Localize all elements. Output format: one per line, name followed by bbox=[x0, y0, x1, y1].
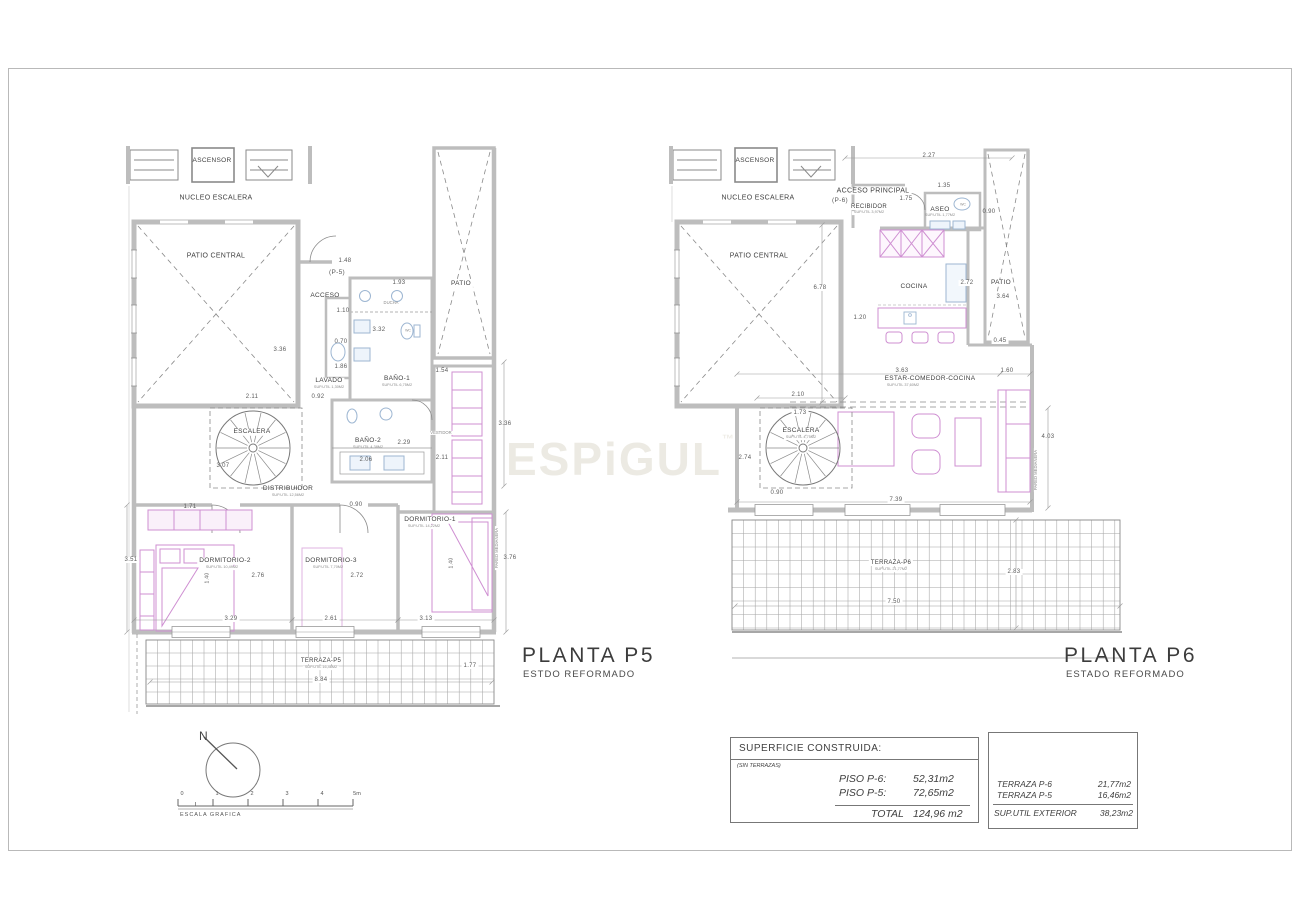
built-row-label: PISO P-5: bbox=[839, 787, 886, 799]
north-label: N bbox=[199, 729, 208, 743]
entry-p6 bbox=[853, 182, 985, 230]
scale-tick-label: 5m bbox=[353, 791, 361, 797]
scale-tick-label: 4 bbox=[320, 791, 323, 797]
wet-rooms-p5 bbox=[310, 236, 432, 482]
scale-tick-label: 1 bbox=[215, 791, 218, 797]
exterior-row-value: 21,77m2 bbox=[1098, 779, 1131, 789]
patio-central-p5 bbox=[131, 222, 298, 406]
exterior-area-table: TERRAZA P-6 21,77m2 TERRAZA P-5 16,46m2 … bbox=[988, 732, 1138, 829]
escalera-p5 bbox=[210, 408, 302, 488]
built-total-label: TOTAL bbox=[871, 808, 904, 820]
terraza-p5 bbox=[137, 634, 500, 714]
scale-tick-label: 0 bbox=[180, 791, 183, 797]
bedrooms-p5 bbox=[134, 505, 492, 638]
exterior-total-value: 38,23m2 bbox=[1100, 808, 1133, 818]
stair-core-p6 bbox=[671, 146, 853, 222]
exterior-row-label: TERRAZA P-5 bbox=[997, 790, 1052, 800]
dimension-lines bbox=[125, 156, 1123, 685]
vestidor-p5 bbox=[434, 366, 494, 512]
built-row-value: 52,31m2 bbox=[913, 773, 954, 785]
built-table-note: (SIN TERRAZAS) bbox=[737, 763, 781, 769]
patio-strip-p6 bbox=[985, 150, 1028, 345]
exterior-total-label: SUP.UTIL EXTERIOR bbox=[994, 808, 1077, 818]
plan-p6-title: PLANTA P6 bbox=[1064, 644, 1197, 668]
built-row-label: PISO P-6: bbox=[839, 773, 886, 785]
built-table-rule bbox=[731, 759, 978, 760]
estar-p6 bbox=[728, 345, 1032, 516]
drawing-sheet: ESPiGUL™ bbox=[0, 0, 1300, 920]
plan-p5-subtitle: ESTDO REFORMADO bbox=[523, 669, 635, 680]
patio-strip-p5 bbox=[434, 148, 494, 358]
cocina-p6 bbox=[878, 228, 968, 345]
exterior-row-value: 16,46m2 bbox=[1098, 790, 1131, 800]
plan-p6-subtitle: ESTADO REFORMADO bbox=[1066, 669, 1185, 680]
scale-bar-caption: ESCALA GRAFICA bbox=[180, 812, 241, 818]
built-total-rule bbox=[835, 805, 970, 806]
terraza-p6 bbox=[732, 520, 1122, 658]
exterior-row-label: TERRAZA P-6 bbox=[997, 779, 1052, 789]
built-table-title: SUPERFICIE CONSTRUIDA: bbox=[739, 743, 882, 754]
built-area-table: SUPERFICIE CONSTRUIDA: (SIN TERRAZAS) PI… bbox=[730, 737, 979, 823]
scale-bar-linework bbox=[178, 799, 353, 809]
built-row-value: 72,65m2 bbox=[913, 787, 954, 799]
scale-tick-label: 3 bbox=[285, 791, 288, 797]
compass bbox=[204, 737, 260, 797]
scale-tick-label: 2 bbox=[250, 791, 253, 797]
built-total-value: 124,96 m2 bbox=[913, 808, 963, 820]
plan-p5-title: PLANTA P5 bbox=[522, 644, 655, 668]
patio-central-p6 bbox=[674, 222, 841, 406]
exterior-total-rule bbox=[993, 804, 1133, 805]
